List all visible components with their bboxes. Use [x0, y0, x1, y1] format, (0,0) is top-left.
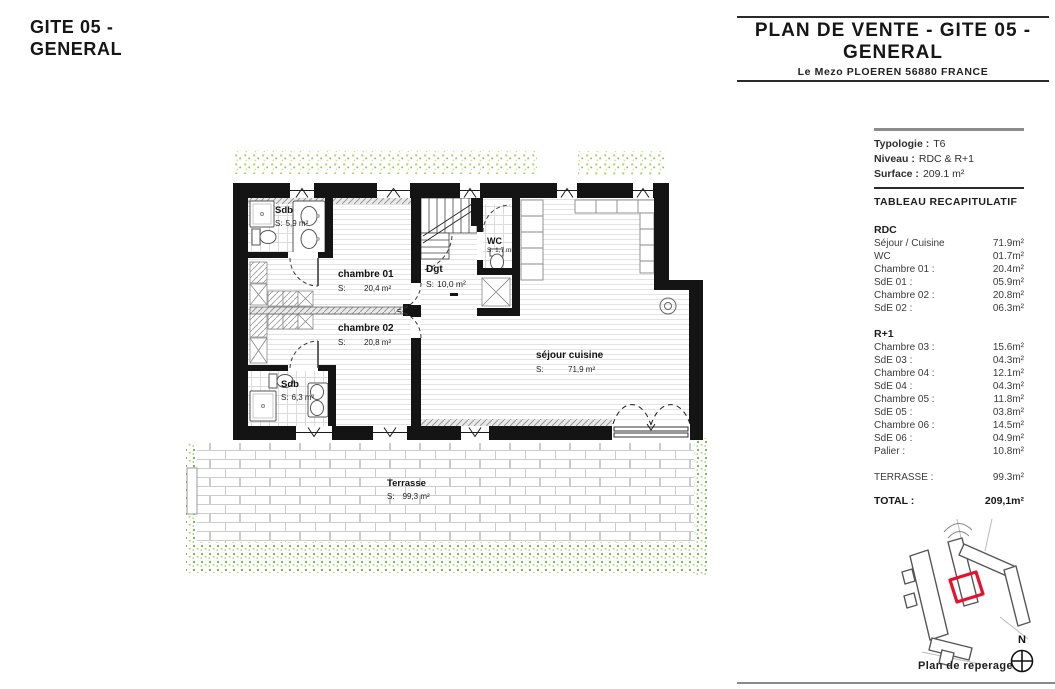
terrasse-paving — [186, 438, 707, 575]
total-row: TOTAL :209,1m² — [874, 495, 1024, 508]
document-title-line2: GENERAL — [30, 38, 122, 60]
table-row: Chambre 03 :15.6m² — [874, 341, 1024, 354]
header-title-line1: PLAN DE VENTE - GITE 05 - — [737, 20, 1049, 42]
header-rule-bottom — [737, 80, 1049, 82]
document-title-line1: GITE 05 - — [30, 16, 122, 38]
table-row: Chambre 04 :12.1m² — [874, 367, 1024, 380]
north-compass-icon — [1012, 651, 1033, 672]
room-label-chambre-01: chambre 01 S: 20,4 m² — [338, 269, 394, 293]
typologie-row: Typologie :T6 — [874, 137, 1024, 152]
surface-row: Surface :209.1 m² — [874, 167, 1024, 182]
partition-wall — [250, 307, 411, 314]
table-row: SdE 05 :03.8m² — [874, 406, 1024, 419]
header-title-line2: GENERAL — [737, 42, 1049, 64]
locator-map — [902, 519, 1030, 666]
header-rule-top — [737, 16, 1049, 18]
room-label-terrasse: Terrasse S: 99,3 m² — [387, 478, 430, 501]
sidebar-rule-thick — [874, 128, 1024, 131]
table-row: SdE 02 :06.3m² — [874, 302, 1024, 315]
header-block: PLAN DE VENTE - GITE 05 - GENERAL Le Mez… — [737, 20, 1049, 78]
table-row: SdE 06 :04.9m² — [874, 432, 1024, 445]
niveau-row: Niveau :RDC & R+1 — [874, 152, 1024, 167]
recap-sidebar: Typologie :T6 Niveau :RDC & R+1 Surface … — [874, 128, 1024, 508]
table-row: Palier :10.8m² — [874, 445, 1024, 458]
terrasse-row: TERRASSE :99.3m² — [874, 471, 1024, 484]
table-row: SdE 04 :04.3m² — [874, 380, 1024, 393]
table-row: Séjour / Cuisine71.9m² — [874, 237, 1024, 250]
room-label-sdb-2: Sdb S: 6,3 m² — [281, 379, 314, 402]
sidebar-rule-thin — [874, 187, 1024, 189]
table-row: Chambre 06 :14.5m² — [874, 419, 1024, 432]
north-label: N — [1014, 634, 1030, 646]
table-row: Chambre 01 :20.4m² — [874, 263, 1024, 276]
table-row: SdE 01 :05.9m² — [874, 276, 1024, 289]
room-label-dgt: Dgt S: 10,0 m² — [426, 264, 466, 289]
table-row: WC01.7m² — [874, 250, 1024, 263]
footer-rule — [737, 682, 1055, 684]
room-label-chambre-02: chambre 02 S: 20,8 m² — [338, 323, 394, 347]
vegetation-band-top — [233, 150, 664, 175]
header-subtitle: Le Mezo PLOEREN 56880 FRANCE — [737, 66, 1049, 78]
table-row: Chambre 05 :11.8m² — [874, 393, 1024, 406]
room-label-sdb-1: Sdb S: 5,9 m² — [275, 205, 308, 228]
section-title-r1: R+1 — [874, 328, 1024, 341]
reperage-caption: Plan de reperage — [918, 660, 1013, 672]
table-title: TABLEAU RECAPITULATIF — [874, 196, 1024, 208]
room-label-sejour-cuisine: séjour cuisine S: 71,9 m² — [536, 350, 603, 374]
table-row: SdE 03 :04.3m² — [874, 354, 1024, 367]
table-row: Chambre 02 :20.8m² — [874, 289, 1024, 302]
document-title: GITE 05 - GENERAL — [30, 16, 122, 60]
wall-lining-strip-bottom — [421, 419, 612, 426]
section-title-rdc: RDC — [874, 224, 1024, 237]
room-label-wc: WC S: 1,7 m² — [487, 236, 514, 254]
